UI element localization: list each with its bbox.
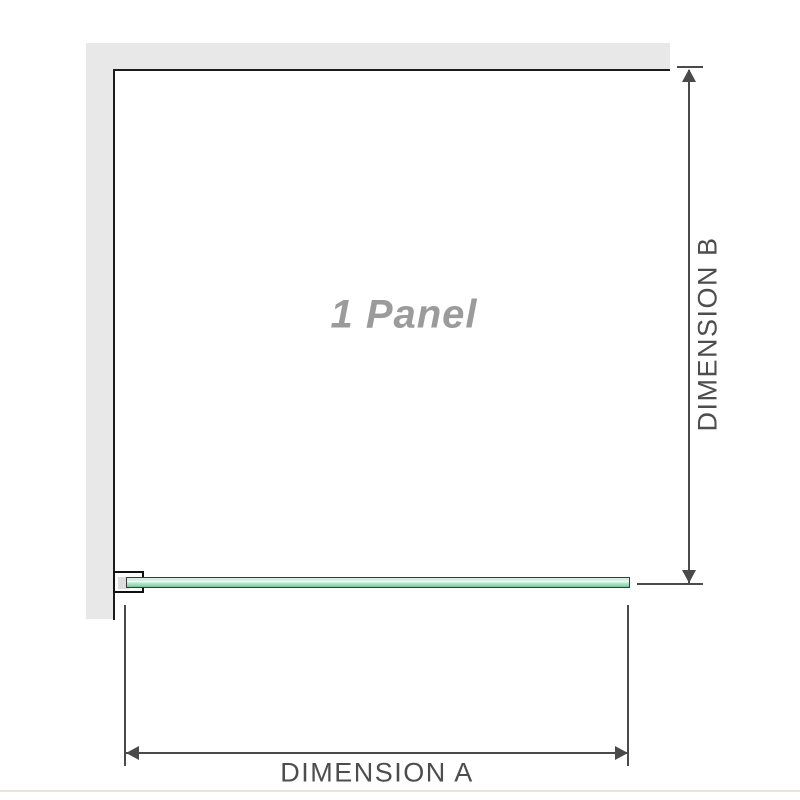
dimension-b-tick-top: [677, 66, 703, 68]
arrow-down-icon: [682, 570, 696, 583]
arrow-right-icon: [615, 746, 628, 760]
panel-count-label: 1 Panel: [330, 293, 477, 338]
wall-inner-edge-left: [113, 69, 115, 620]
dimension-b-label: DIMENSION B: [693, 236, 724, 431]
wall-left: [86, 43, 113, 619]
wall-top: [86, 43, 670, 69]
dimension-a-line: [126, 752, 628, 754]
arrow-left-icon: [126, 746, 139, 760]
glass-panel: [126, 577, 630, 588]
wall-inner-edge-top: [113, 69, 670, 71]
dimension-b-line: [688, 70, 690, 584]
arrow-up-icon: [682, 69, 696, 82]
dimension-a-extension-right: [627, 605, 629, 766]
dimension-a-extension-left: [124, 605, 126, 766]
dimension-a-label: DIMENSION A: [280, 758, 474, 789]
diagram-canvas: 1 Panel DIMENSION B DIMENSION A: [0, 0, 800, 800]
bottom-divider: [0, 790, 800, 792]
dimension-b-tick-bottom: [637, 583, 703, 585]
